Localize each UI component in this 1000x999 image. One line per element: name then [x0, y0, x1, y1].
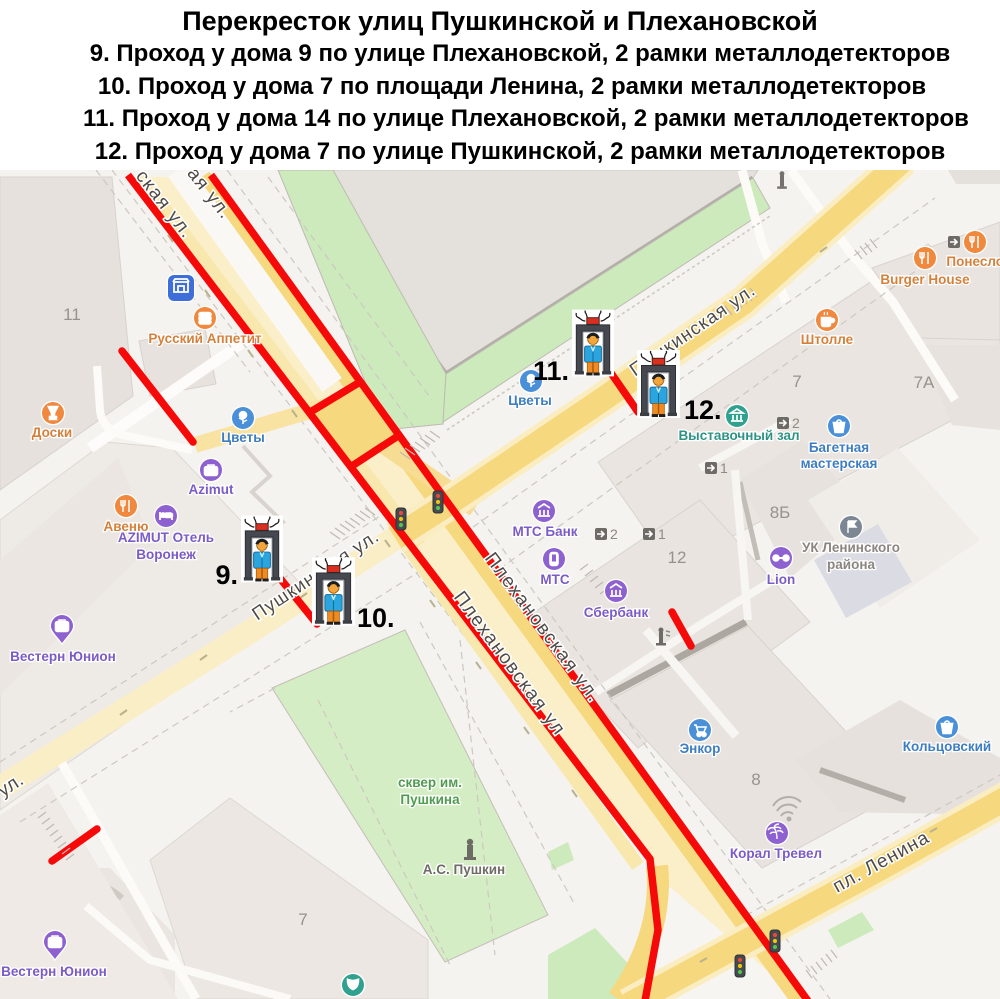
svg-text:7: 7	[792, 372, 801, 391]
svg-text:Понеслось: Понеслось	[946, 254, 1000, 269]
svg-text:УК Ленинского: УК Ленинского	[802, 540, 900, 555]
svg-text:1: 1	[720, 460, 728, 476]
svg-text:11: 11	[63, 305, 81, 324]
svg-text:района: района	[827, 557, 875, 572]
svg-text:Выставочный зал: Выставочный зал	[678, 428, 799, 443]
svg-text:Lion: Lion	[767, 572, 796, 587]
svg-text:Цветы: Цветы	[508, 393, 551, 408]
svg-text:AZIMUT Отель: AZIMUT Отель	[118, 530, 214, 545]
svg-text:мастерская: мастерская	[801, 456, 878, 471]
svg-text:Доски: Доски	[32, 425, 72, 440]
svg-text:сквер им.: сквер им.	[398, 775, 462, 790]
svg-text:Вестерн Юнион: Вестерн Юнион	[10, 649, 116, 664]
svg-text:10.: 10.	[357, 603, 395, 633]
svg-text:1: 1	[658, 526, 666, 542]
svg-text:Штолле: Штолле	[801, 332, 854, 347]
svg-text:Русский Аппетит: Русский Аппетит	[148, 331, 262, 346]
svg-text:Azimut: Azimut	[189, 482, 235, 497]
svg-text:11.: 11.	[533, 356, 569, 386]
svg-text:8Б: 8Б	[770, 503, 791, 522]
svg-text:9.: 9.	[215, 560, 238, 590]
svg-text:Сбербанк: Сбербанк	[584, 605, 649, 620]
svg-text:Энкор: Энкор	[680, 741, 721, 756]
svg-text:7: 7	[298, 910, 307, 929]
svg-text:7А: 7А	[914, 373, 935, 392]
svg-text:Кольцовский: Кольцовский	[903, 739, 991, 754]
svg-text:Багетная: Багетная	[809, 440, 869, 455]
svg-text:А.С. Пушкин: А.С. Пушкин	[423, 862, 505, 877]
svg-text:Цветы: Цветы	[221, 430, 264, 445]
svg-text:Воронеж: Воронеж	[136, 547, 196, 562]
svg-text:12: 12	[668, 548, 687, 567]
svg-text:Корал Тревел: Корал Тревел	[730, 846, 822, 861]
svg-text:Пушкина: Пушкина	[400, 792, 460, 807]
svg-text:2: 2	[610, 526, 618, 542]
svg-text:12.: 12.	[684, 395, 722, 425]
svg-text:МТС: МТС	[540, 572, 569, 587]
svg-text:Вестерн Юнион: Вестерн Юнион	[1, 964, 107, 979]
svg-text:8: 8	[751, 770, 760, 789]
svg-text:МТС Банк: МТС Банк	[512, 524, 577, 539]
svg-text:Burger House: Burger House	[880, 272, 970, 287]
